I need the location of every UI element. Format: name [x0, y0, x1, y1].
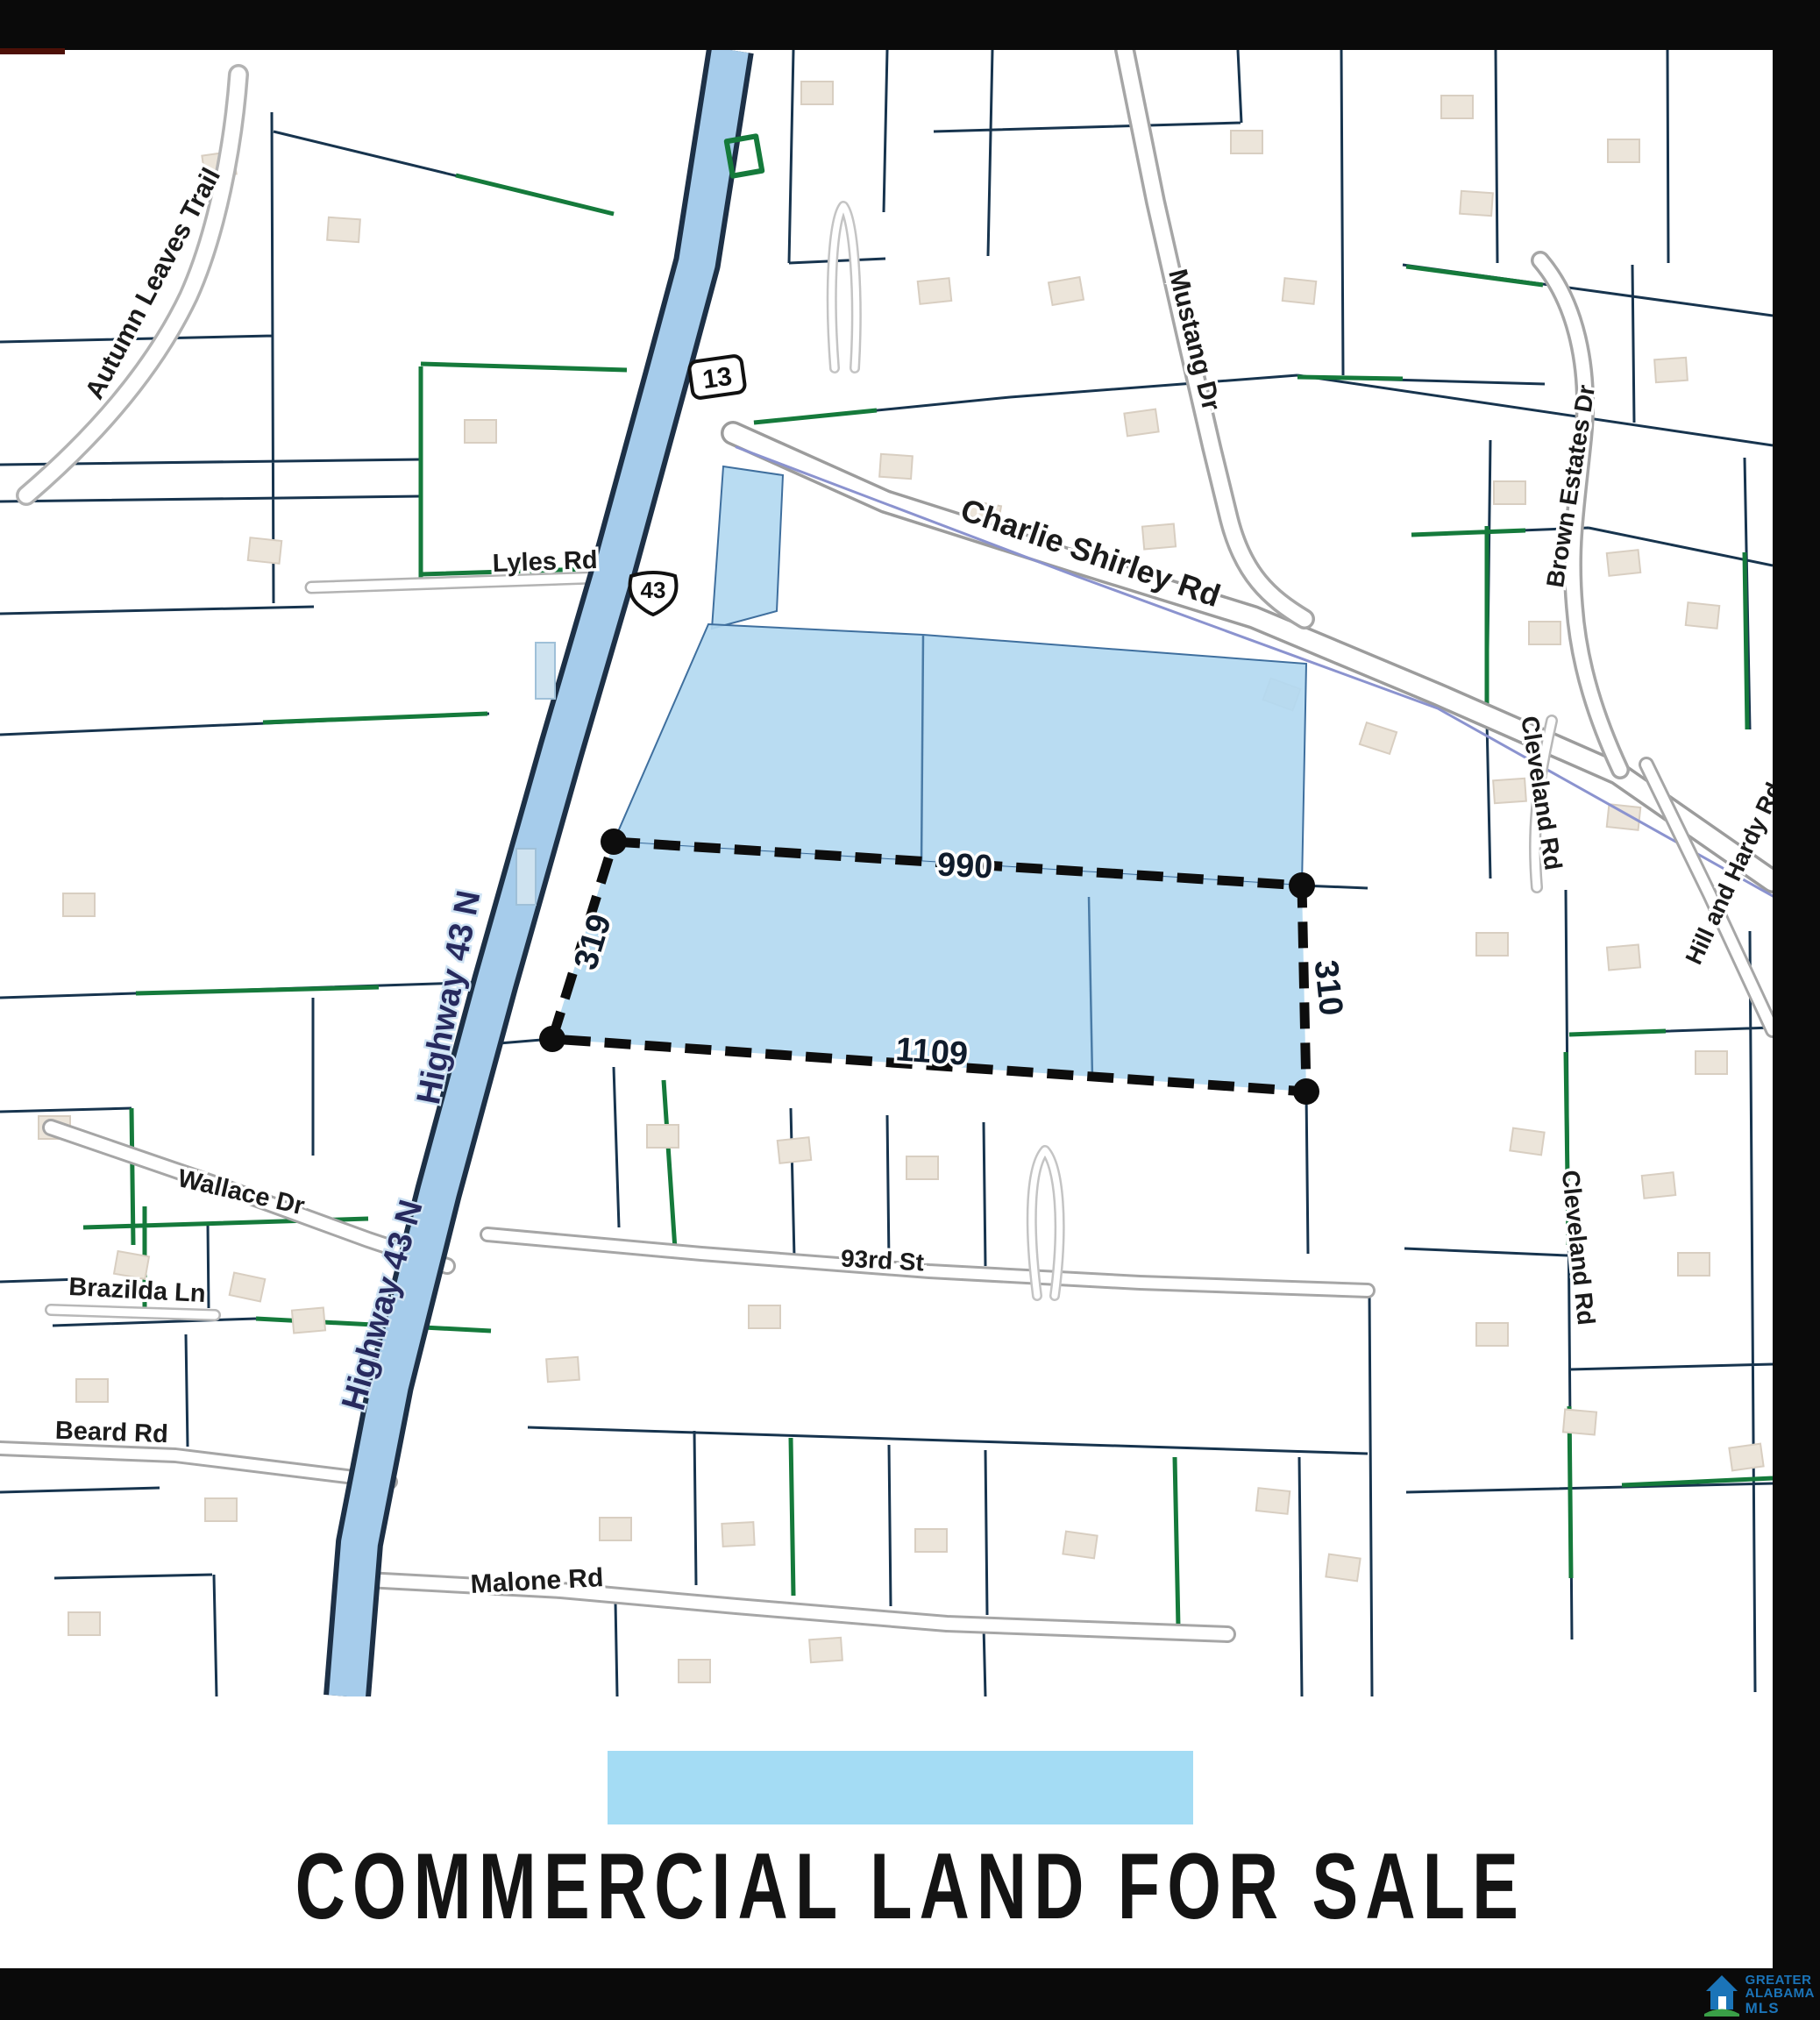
mls-text-line2: ALABAMA: [1745, 1987, 1815, 2000]
label-beard-rd: Beard Rd: [54, 1417, 168, 1448]
highlight-sliver-parcel: [712, 466, 783, 629]
right-border-bar: [1773, 50, 1820, 1968]
top-border-bar: [0, 0, 1820, 50]
label-93rd-st: 93rd St: [840, 1245, 924, 1277]
label-charlie-shirley-rd: Charlie Shirley Rd: [956, 491, 1226, 614]
mls-logo: GREATER ALABAMA MLS: [1703, 1973, 1815, 2016]
dim-right: 310: [1307, 958, 1349, 1017]
label-mustang-dr: Mustang Dr: [1162, 267, 1226, 414]
flyer-page: 990 1109 319 310 13 43 Autumn Leaves Tra…: [0, 0, 1820, 2020]
label-brazilda-ln: Brazilda Ln: [68, 1273, 207, 1308]
mls-text-line3: MLS: [1745, 2001, 1815, 2016]
legend-highlight-swatch: [608, 1751, 1193, 1824]
label-wallace-dr: Wallace Dr: [175, 1164, 308, 1220]
boundary-corner-dot: [601, 829, 627, 855]
route-badge-13: 13: [688, 355, 745, 399]
red-accent-sliver: [0, 48, 65, 54]
map: 990 1109 319 310 13 43 Autumn Leaves Tra…: [0, 50, 1773, 1696]
svg-text:43: 43: [641, 577, 666, 603]
mls-text-line1: GREATER: [1745, 1974, 1815, 1987]
bottom-border-bar: [0, 1968, 1820, 2020]
dim-bottom: 1109: [894, 1031, 969, 1073]
boundary-corner-dot: [1289, 872, 1315, 899]
route-badge-43: 43: [630, 573, 677, 615]
label-brown-estates-dr: Brown Estates Dr: [1541, 383, 1600, 589]
road-autumn-leaves-trail: [26, 75, 238, 495]
svg-text:13: 13: [700, 362, 734, 395]
label-lyles-rd: Lyles Rd: [492, 546, 598, 578]
dim-top: 990: [936, 846, 994, 886]
flyer-title-text: COMMERCIAL LAND FOR SALE: [295, 1839, 1525, 1933]
boundary-corner-dot: [1293, 1078, 1319, 1105]
map-canvas: 990 1109 319 310 13 43 Autumn Leaves Tra…: [0, 50, 1773, 1696]
flyer-title: COMMERCIAL LAND FOR SALE: [0, 1839, 1820, 1933]
boundary-corner-dot: [539, 1026, 565, 1052]
label-cleveland-rd-lower: Cleveland Rd: [1557, 1169, 1600, 1327]
mls-logo-text: GREATER ALABAMA MLS: [1745, 1974, 1815, 2016]
mls-house-icon: [1703, 1973, 1741, 2016]
